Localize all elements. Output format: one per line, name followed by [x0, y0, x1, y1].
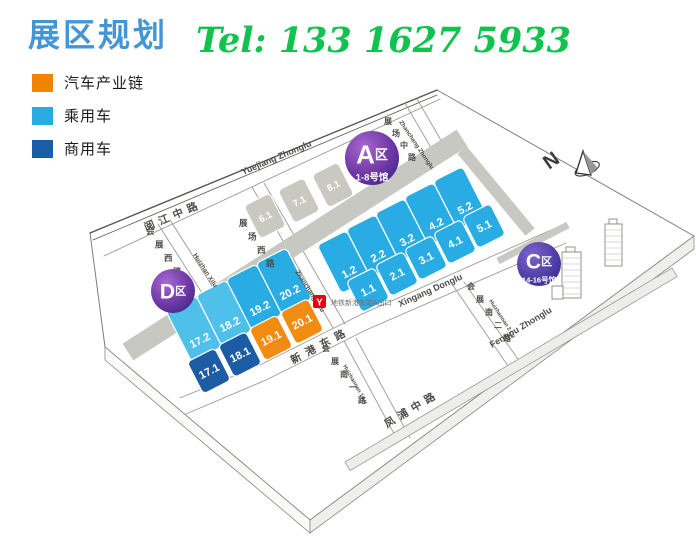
passenger-color-swatch	[32, 107, 53, 125]
zone-badge-A: A区1-8号馆	[345, 131, 399, 185]
zone-badge-sub-C: 14-16号馆	[522, 275, 557, 285]
legend-label: 乘用车	[64, 105, 112, 126]
industry-color-swatch	[32, 74, 53, 92]
zone-badge-D: D区	[151, 269, 195, 313]
building-tower-1	[562, 252, 581, 298]
zone-badge-sub-A: 1-8号馆	[356, 172, 389, 184]
building-tower-1-cap	[566, 247, 575, 252]
legend-label: 汽车产业链	[64, 72, 144, 93]
legend-item-commercial: 商用车	[32, 132, 144, 165]
phone-number: Tel: 133 1627 5933	[196, 20, 571, 61]
zone-badge-C: C区14-16号馆	[517, 242, 561, 286]
legend-item-passenger: 乘用车	[32, 99, 144, 132]
legend: 汽车产业链 乘用车 商用车	[32, 66, 144, 165]
legend-label: 商用车	[64, 138, 112, 159]
legend-item-industry: 汽车产业链	[32, 66, 144, 99]
building-tower-1-annex	[552, 286, 563, 299]
metro-logo-letter: Y	[316, 298, 323, 309]
building-tower-2	[605, 224, 622, 266]
page-title: 展区规划	[28, 10, 168, 56]
building-tower-2-cap	[609, 219, 617, 224]
commercial-color-swatch	[32, 140, 53, 158]
metro-exit-label: 地铁新港东站A出口	[331, 298, 392, 307]
compass-icon	[573, 151, 601, 179]
